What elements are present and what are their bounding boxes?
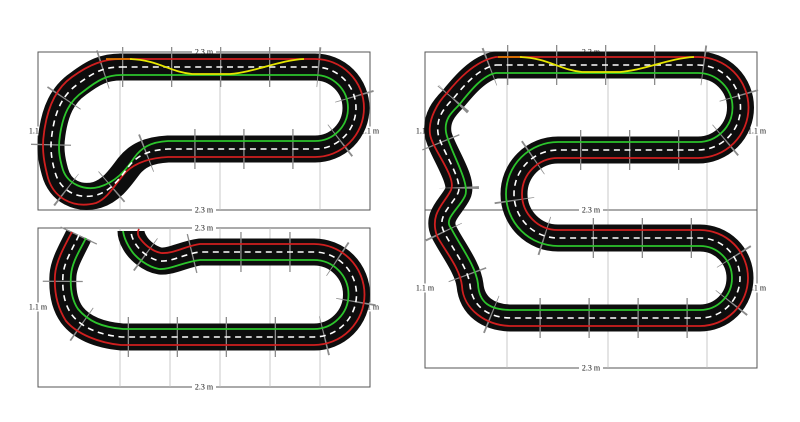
dim-label-bottom: 2.3 m: [195, 206, 214, 215]
track-surface: [438, 65, 741, 318]
track-surface: [63, 231, 357, 337]
inner-lane-line: [59, 75, 348, 188]
dim-label-top: 2.3 m: [195, 224, 214, 233]
dim-label-bottom: 2.3 m: [582, 364, 601, 373]
track-surface: [51, 67, 356, 196]
track-layout-drawing: 2.3 m 2.3 m 1.1 m 1.1 m 2.3 m 2.3 m 1.1 …: [0, 0, 800, 422]
dim-label-middle: 2.3 m: [582, 206, 601, 215]
track-designer-canvas: 2.3 m 2.3 m 1.1 m 1.1 m 2.3 m 2.3 m 1.1 …: [0, 0, 800, 422]
track-open-oval: [55, 229, 365, 345]
dim-label-left: 1.1 m: [416, 284, 435, 293]
dim-label-left: 1.1 m: [29, 303, 48, 312]
track-closed-loop-hairpin: [43, 59, 364, 205]
inner-lane-line: [446, 73, 733, 310]
dim-label-right: 1.1 m: [748, 127, 767, 136]
track-serpentine: [430, 57, 749, 326]
center-dashed-line: [438, 65, 741, 318]
track-piece-joints: [438, 65, 741, 318]
dim-label-bottom: 2.3 m: [195, 383, 214, 392]
